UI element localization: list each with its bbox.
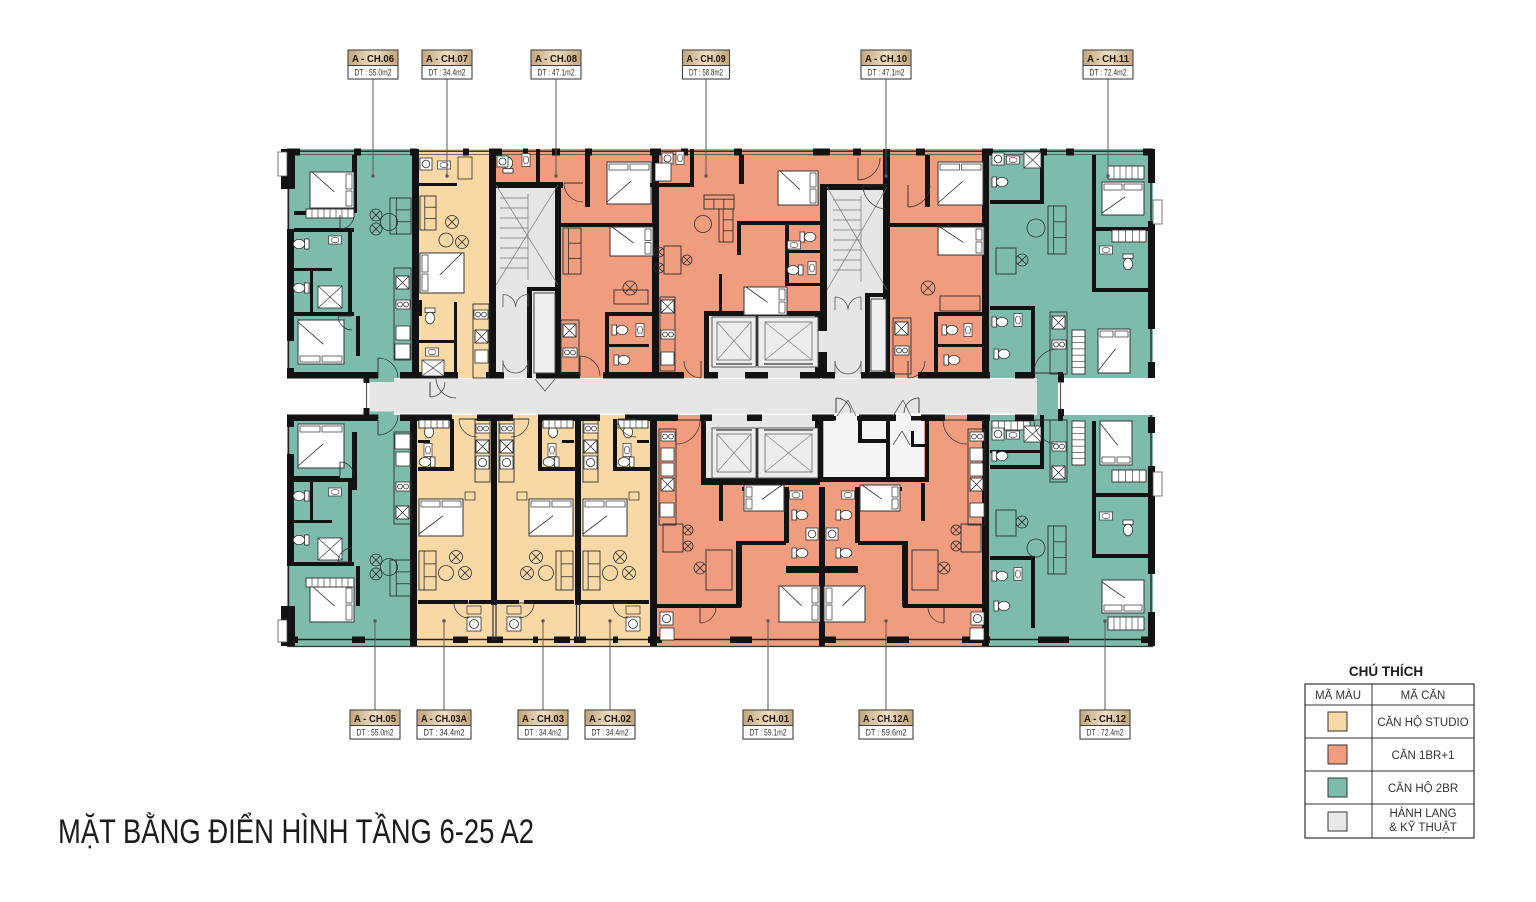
svg-text:A - CH.08: A - CH.08 <box>535 53 577 65</box>
svg-text:HÀNH LANG: HÀNH LANG <box>1389 807 1456 820</box>
svg-text:DT : 59.1m2: DT : 59.1m2 <box>750 728 787 738</box>
svg-text:A - CH.12A: A - CH.12A <box>863 713 909 725</box>
svg-text:A - CH.03: A - CH.03 <box>522 713 564 725</box>
svg-text:DT : 59.6m2: DT : 59.6m2 <box>866 728 907 738</box>
svg-text:A - CH.07: A - CH.07 <box>426 53 468 65</box>
svg-text:MẶT BẰNG ĐIỂN HÌNH TẦNG 6-25 A: MẶT BẰNG ĐIỂN HÌNH TẦNG 6-25 A2 <box>58 813 534 851</box>
svg-text:DT : 34.4m2: DT : 34.4m2 <box>424 728 465 738</box>
svg-text:A - CH.02: A - CH.02 <box>589 713 631 725</box>
svg-text:A - CH.06: A - CH.06 <box>352 53 394 65</box>
svg-text:A - CH.12: A - CH.12 <box>1084 713 1126 725</box>
svg-text:DT : 34.4m2: DT : 34.4m2 <box>592 728 629 738</box>
svg-text:DT : 34.4m2: DT : 34.4m2 <box>429 68 466 78</box>
svg-text:CĂN 1BR+1: CĂN 1BR+1 <box>1392 749 1455 762</box>
svg-text:DT : 72.4m2: DT : 72.4m2 <box>1087 728 1124 738</box>
svg-text:DT : 34.4m2: DT : 34.4m2 <box>525 728 562 738</box>
svg-text:CĂN HỘ 2BR: CĂN HỘ 2BR <box>1388 782 1458 795</box>
svg-text:DT : 55.0m2: DT : 55.0m2 <box>357 728 394 738</box>
svg-text:A - CH.10: A - CH.10 <box>865 53 907 65</box>
svg-text:& KỸ THUẬT: & KỸ THUẬT <box>1389 821 1457 834</box>
svg-text:DT : 47.1m2: DT : 47.1m2 <box>868 68 905 78</box>
svg-text:CĂN HỘ STUDIO: CĂN HỘ STUDIO <box>1377 716 1468 729</box>
svg-text:A - CH.11: A - CH.11 <box>1087 53 1129 65</box>
svg-text:A - CH.03A: A - CH.03A <box>421 713 467 725</box>
svg-text:DT : 58.8m2: DT : 58.8m2 <box>689 68 723 78</box>
svg-text:MÃ CĂN: MÃ CĂN <box>1401 689 1446 702</box>
svg-text:DT : 47.1m2: DT : 47.1m2 <box>538 68 575 78</box>
svg-text:MÃ MÀU: MÃ MÀU <box>1315 689 1361 702</box>
svg-text:A - CH.01: A - CH.01 <box>747 713 789 725</box>
svg-text:DT : 55.0m2: DT : 55.0m2 <box>355 68 392 78</box>
svg-text:A - CH.09: A - CH.09 <box>687 53 726 65</box>
svg-text:CHÚ THÍCH: CHÚ THÍCH <box>1349 664 1423 679</box>
svg-text:DT : 72.4m2: DT : 72.4m2 <box>1090 68 1127 78</box>
svg-text:A - CH.05: A - CH.05 <box>354 713 396 725</box>
